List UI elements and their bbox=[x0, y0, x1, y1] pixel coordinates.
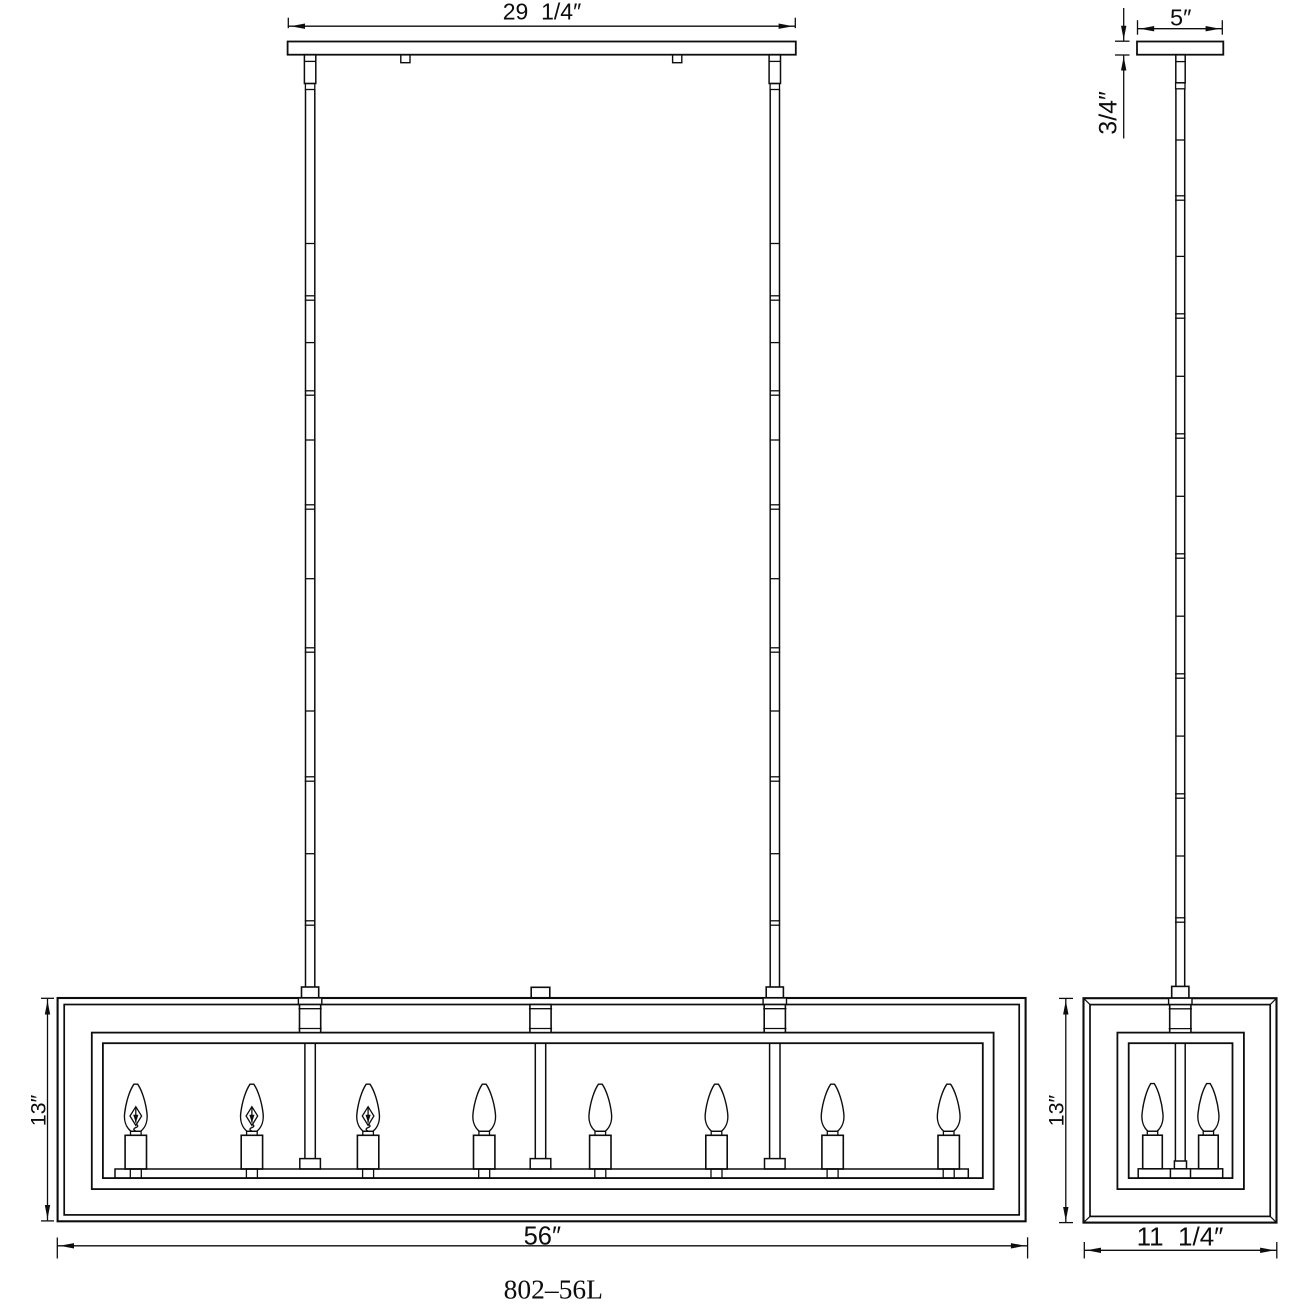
svg-text:56″: 56″ bbox=[524, 1223, 561, 1251]
svg-text:13″: 13″ bbox=[26, 1094, 50, 1126]
svg-text:802–56L: 802–56L bbox=[504, 1273, 603, 1304]
svg-text:29 1/4″: 29 1/4″ bbox=[503, 0, 581, 25]
svg-text:13″: 13″ bbox=[1044, 1094, 1068, 1126]
svg-text:5″: 5″ bbox=[1170, 5, 1191, 31]
svg-text:3/4″: 3/4″ bbox=[1094, 91, 1122, 135]
svg-text:11 1/4″: 11 1/4″ bbox=[1137, 1222, 1224, 1252]
